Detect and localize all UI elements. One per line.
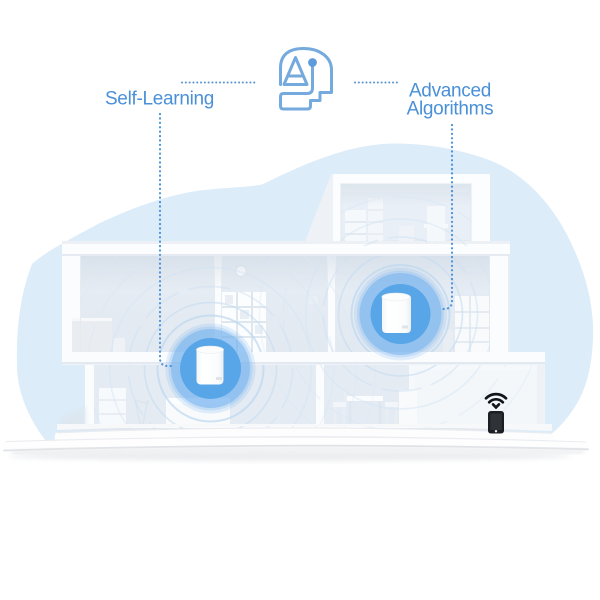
svg-text:Self-Learning: Self-Learning <box>105 89 214 110</box>
svg-text:Algorithms: Algorithms <box>407 99 494 120</box>
